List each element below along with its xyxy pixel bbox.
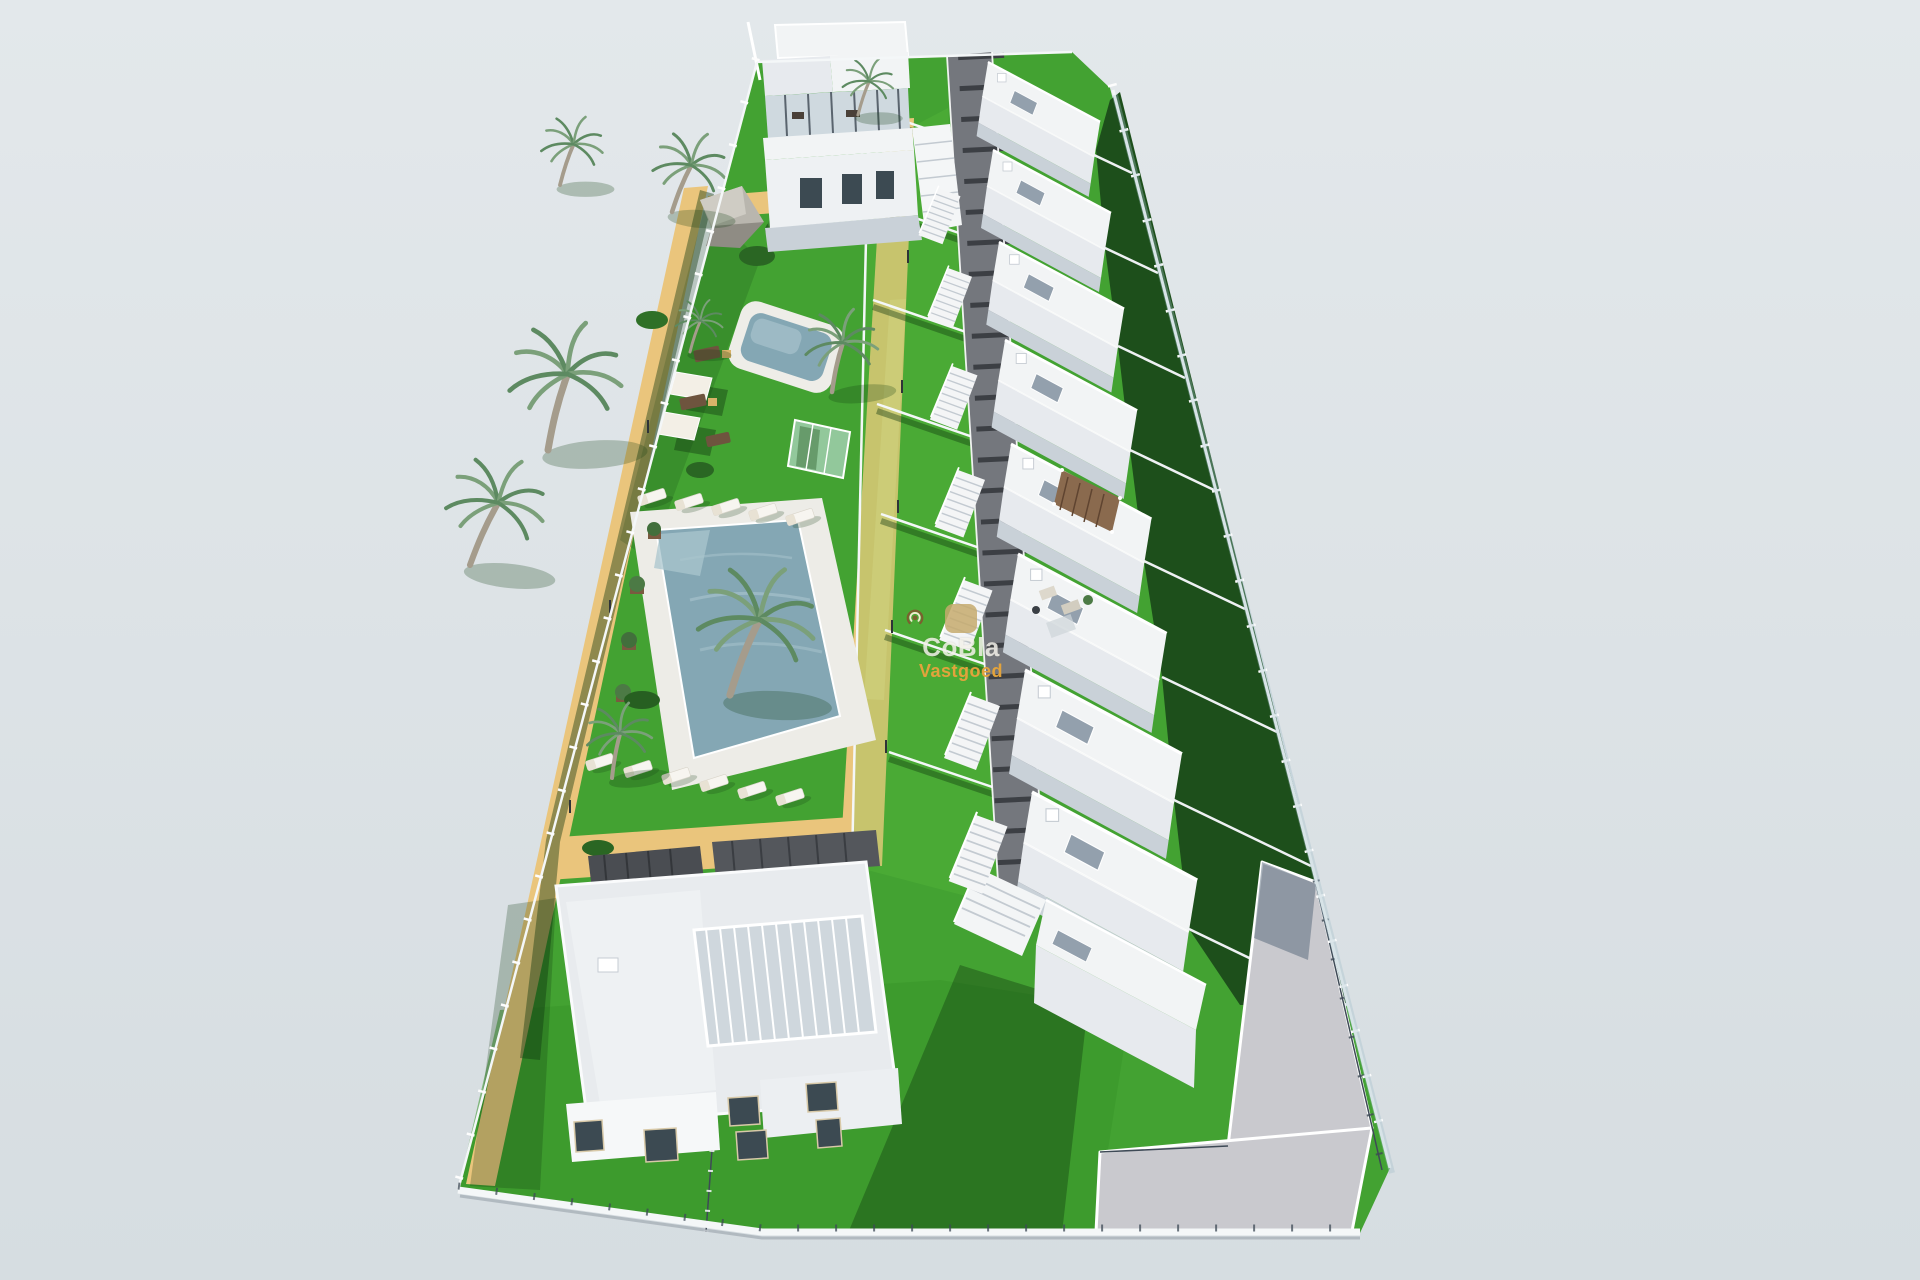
palm-tree <box>541 117 614 197</box>
palm-tree <box>505 319 648 474</box>
render-canvas: CoBla Vastgoed <box>0 0 1920 1280</box>
scene <box>0 0 1920 1280</box>
palm-tree <box>438 454 567 592</box>
villa-roof-pergola <box>694 916 876 1046</box>
